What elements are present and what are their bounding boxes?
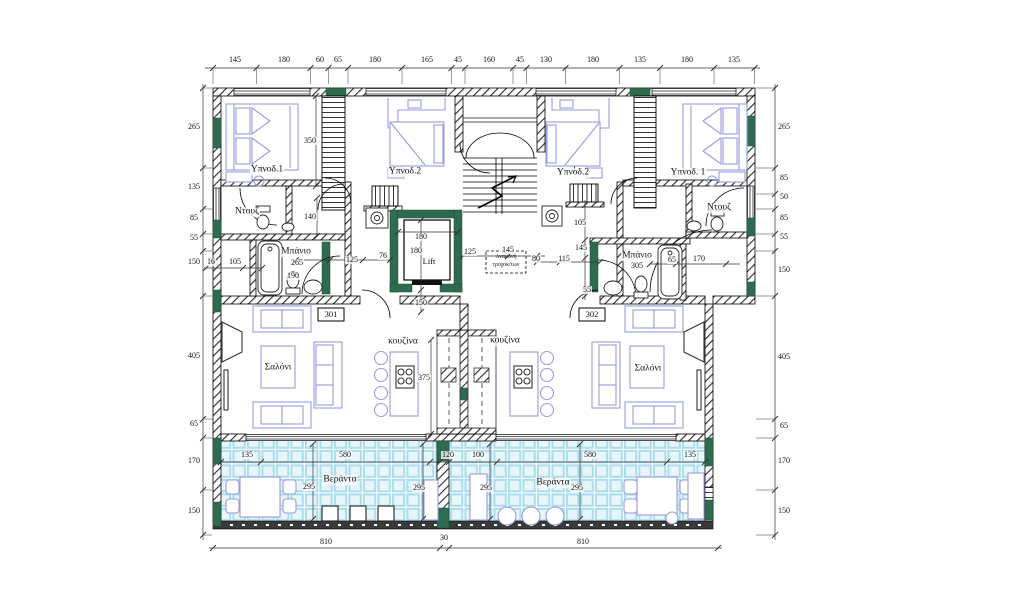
dimension-label: 85 [189,214,199,222]
dimension-label: 170 [187,457,201,465]
dimension-label: 125 [463,248,477,256]
dimension-label: 810 [576,538,590,546]
dimension-label: 50 [779,193,789,201]
dimension-label: 105 [228,258,242,266]
dimension-label: 405 [777,353,791,361]
room-label: κουζίνα [387,337,419,347]
dimension-label: 60 [315,56,325,64]
dimension-label: 65 [189,420,199,428]
dimension-label: 150 [187,507,201,515]
dimension-label: 65 [667,256,677,264]
dimension-label: 190 [286,272,300,280]
dimension-label: 135 [187,183,201,191]
dimension-label: 65 [333,56,343,64]
dimension-label: 180 [409,247,423,255]
dimension-label: 85 [779,174,789,182]
room-label: Μπάνιο [280,247,312,257]
lift-label: Lift [422,257,437,266]
room-label: Σαλόνι [634,364,663,374]
dimension-label: 375 [417,374,431,382]
dimension-label: 76 [378,252,388,260]
room-label: Ντουζ [234,207,260,217]
dimension-label: 150 [414,299,428,307]
dimension-label: 30 [439,534,449,542]
room-label: Υπνοδ. 1 [670,168,707,178]
note-text: τροχοκ/των [492,263,521,269]
dimension-label: 295 [479,484,493,492]
dimension-label: 265 [777,123,791,131]
dimension-label: 170 [777,457,791,465]
dimension-label: 580 [583,451,597,459]
dimension-label: 140 [303,213,317,221]
dimension-label: 80 [531,255,541,263]
dimension-label: 55 [779,233,789,241]
dimension-label: 135 [240,451,254,459]
dimension-label: 295 [570,484,584,492]
dimension-label: 165 [420,56,434,64]
dimension-label: 105 [573,219,587,227]
room-label: Υπνοδ.1 [250,165,284,175]
dimension-label: 85 [779,214,789,222]
dimension-label: 145 [501,246,515,254]
dimension-label: 180 [277,56,291,64]
dimension-label: 100 [471,451,485,459]
dimension-label: 265 [187,123,201,131]
dimension-label: 160 [482,56,496,64]
plan-drawing [0,0,1027,598]
dimension-label: 115 [557,255,571,263]
dimension-label: 150 [777,266,791,274]
dimension-label: 295 [302,483,316,491]
dimension-label: 125 [345,256,359,264]
dimension-label: 135 [683,451,697,459]
dimension-label: 145 [574,244,588,252]
note-text: Αναμονή [494,255,517,261]
staircase [322,96,656,214]
dimension-label: 265 [290,259,304,267]
dimension-label: 65 [779,422,789,430]
dimension-label: 135 [727,56,741,64]
dimension-label: 135 [633,56,647,64]
dimension-label: 45 [515,56,525,64]
dimension-label: 150 [777,507,791,515]
unit-number: 301 [324,310,339,319]
dimension-label: 120 [441,451,455,459]
dimension-label: 405 [187,352,201,360]
dimension-label: 145 [228,56,242,64]
dimension-label: 55 [189,234,199,242]
room-label: Μπάνιο [621,251,653,261]
dimension-label: 305 [630,262,644,270]
lift-shaft [390,210,462,292]
room-label: Ντουζ [706,203,732,213]
dimension-label: 45 [453,56,463,64]
room-label: Βεράντα [322,475,357,485]
dimension-label: 180 [368,56,382,64]
room-label: Σαλόνι [264,363,293,373]
dimension-label: 55 [582,286,592,294]
room-label: Υπνοδ.2 [556,168,590,178]
floor-plan-sheet: 1451806065180165451604513018013518013526… [0,0,1027,598]
dimension-label: 180 [680,56,694,64]
dimension-label: 150 [187,258,201,266]
dimension-label: 180 [414,233,428,241]
unit-number: 302 [585,310,600,319]
dimension-label: 180 [586,56,600,64]
dimension-label: 16 [206,258,216,266]
room-label: κουζίνα [489,336,521,346]
dimension-label: 580 [338,451,352,459]
dimension-label: 810 [319,538,333,546]
dimension-label: 350 [303,137,317,145]
dimension-label: 295 [412,484,426,492]
room-label: Υπνοδ.2 [388,167,422,177]
dimension-label: 130 [539,56,553,64]
room-label: Βεράντα [535,478,570,488]
dimension-label: 170 [692,255,706,263]
